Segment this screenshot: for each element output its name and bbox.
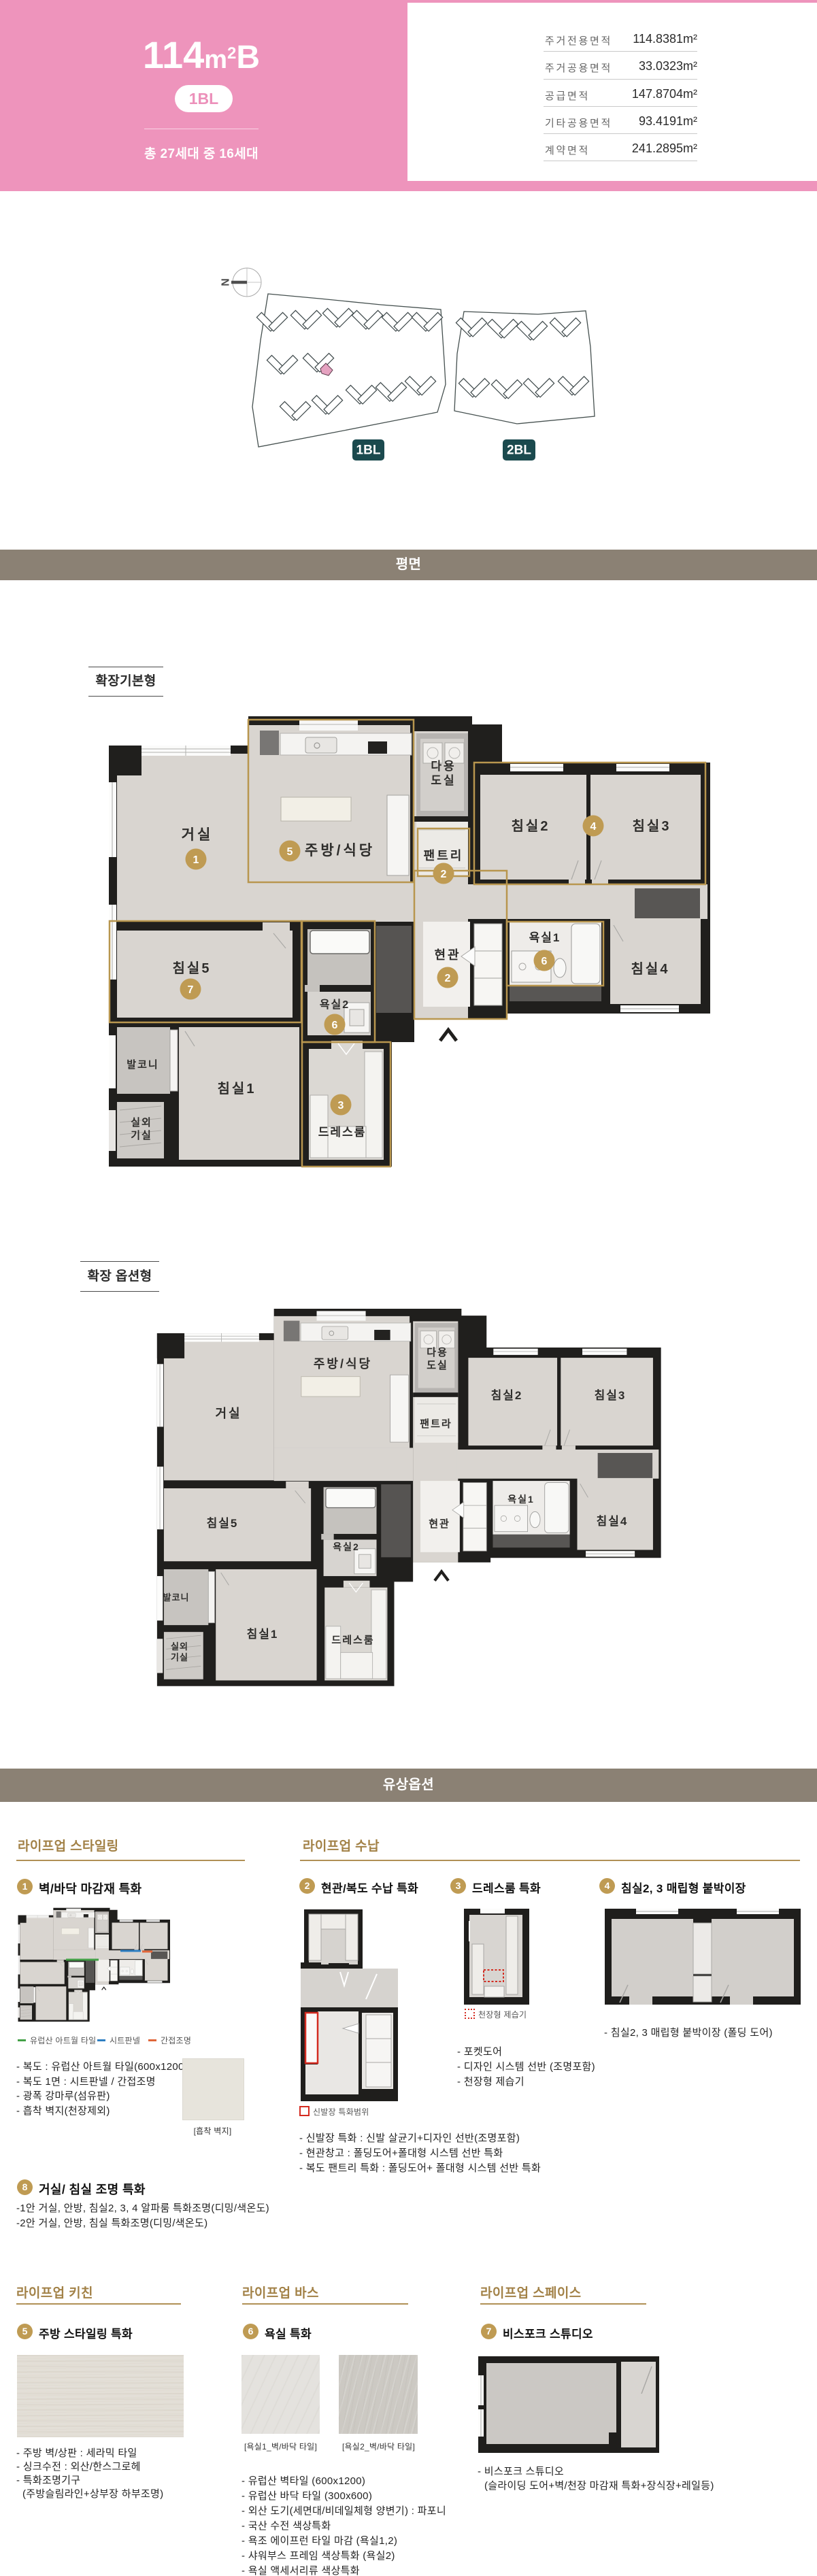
svg-text:발코니: 발코니 [163, 1592, 190, 1603]
svg-text:기실: 기실 [171, 1652, 188, 1662]
svg-text:실외: 실외 [171, 1641, 188, 1652]
svg-text:욕실1: 욕실1 [529, 931, 561, 944]
svg-text:욕실2: 욕실2 [320, 999, 350, 1011]
svg-text:발코니: 발코니 [127, 1059, 159, 1071]
svg-text:4: 4 [590, 821, 597, 833]
svg-text:욕실1: 욕실1 [507, 1494, 535, 1505]
svg-text:다용: 다용 [427, 1347, 448, 1358]
svg-text:현관: 현관 [429, 1518, 450, 1530]
svg-text:주방/식당: 주방/식당 [314, 1357, 372, 1371]
svg-text:침실2: 침실2 [491, 1388, 523, 1402]
svg-text:드레스룸: 드레스룸 [331, 1635, 374, 1646]
svg-text:2: 2 [441, 869, 447, 880]
svg-text:N: N [220, 278, 232, 286]
svg-text:다용: 다용 [431, 760, 456, 773]
svg-text:거실: 거실 [182, 827, 214, 843]
svg-text:드레스룸: 드레스룸 [318, 1126, 367, 1139]
svg-text:거실: 거실 [215, 1407, 241, 1420]
svg-text:욕실2: 욕실2 [333, 1541, 360, 1552]
svg-text:7: 7 [188, 984, 194, 996]
svg-text:2: 2 [445, 973, 451, 984]
svg-text:침실1: 침실1 [218, 1081, 256, 1097]
svg-text:6: 6 [541, 956, 548, 967]
svg-text:침실3: 침실3 [595, 1388, 627, 1402]
svg-text:2BL: 2BL [507, 444, 531, 458]
svg-text:침실1: 침실1 [247, 1627, 279, 1641]
svg-text:침실3: 침실3 [633, 818, 671, 834]
svg-text:침실4: 침실4 [597, 1514, 629, 1528]
svg-text:기실: 기실 [131, 1130, 152, 1141]
svg-text:팬트라: 팬트라 [420, 1418, 452, 1430]
svg-text:침실5: 침실5 [207, 1516, 239, 1530]
svg-text:주방/식당: 주방/식당 [305, 843, 375, 858]
svg-text:5: 5 [287, 846, 293, 858]
svg-text:팬트리: 팬트리 [424, 849, 464, 863]
svg-text:침실2: 침실2 [512, 818, 550, 834]
svg-text:1BL: 1BL [356, 444, 381, 458]
svg-text:도실: 도실 [427, 1360, 448, 1371]
svg-text:현관: 현관 [434, 948, 461, 962]
svg-text:3: 3 [338, 1100, 344, 1111]
svg-text:도실: 도실 [431, 774, 456, 787]
svg-text:1: 1 [193, 854, 199, 866]
svg-text:6: 6 [332, 1020, 338, 1031]
svg-text:침실5: 침실5 [173, 960, 212, 976]
svg-text:침실4: 침실4 [631, 961, 670, 977]
svg-text:실외: 실외 [131, 1116, 152, 1128]
